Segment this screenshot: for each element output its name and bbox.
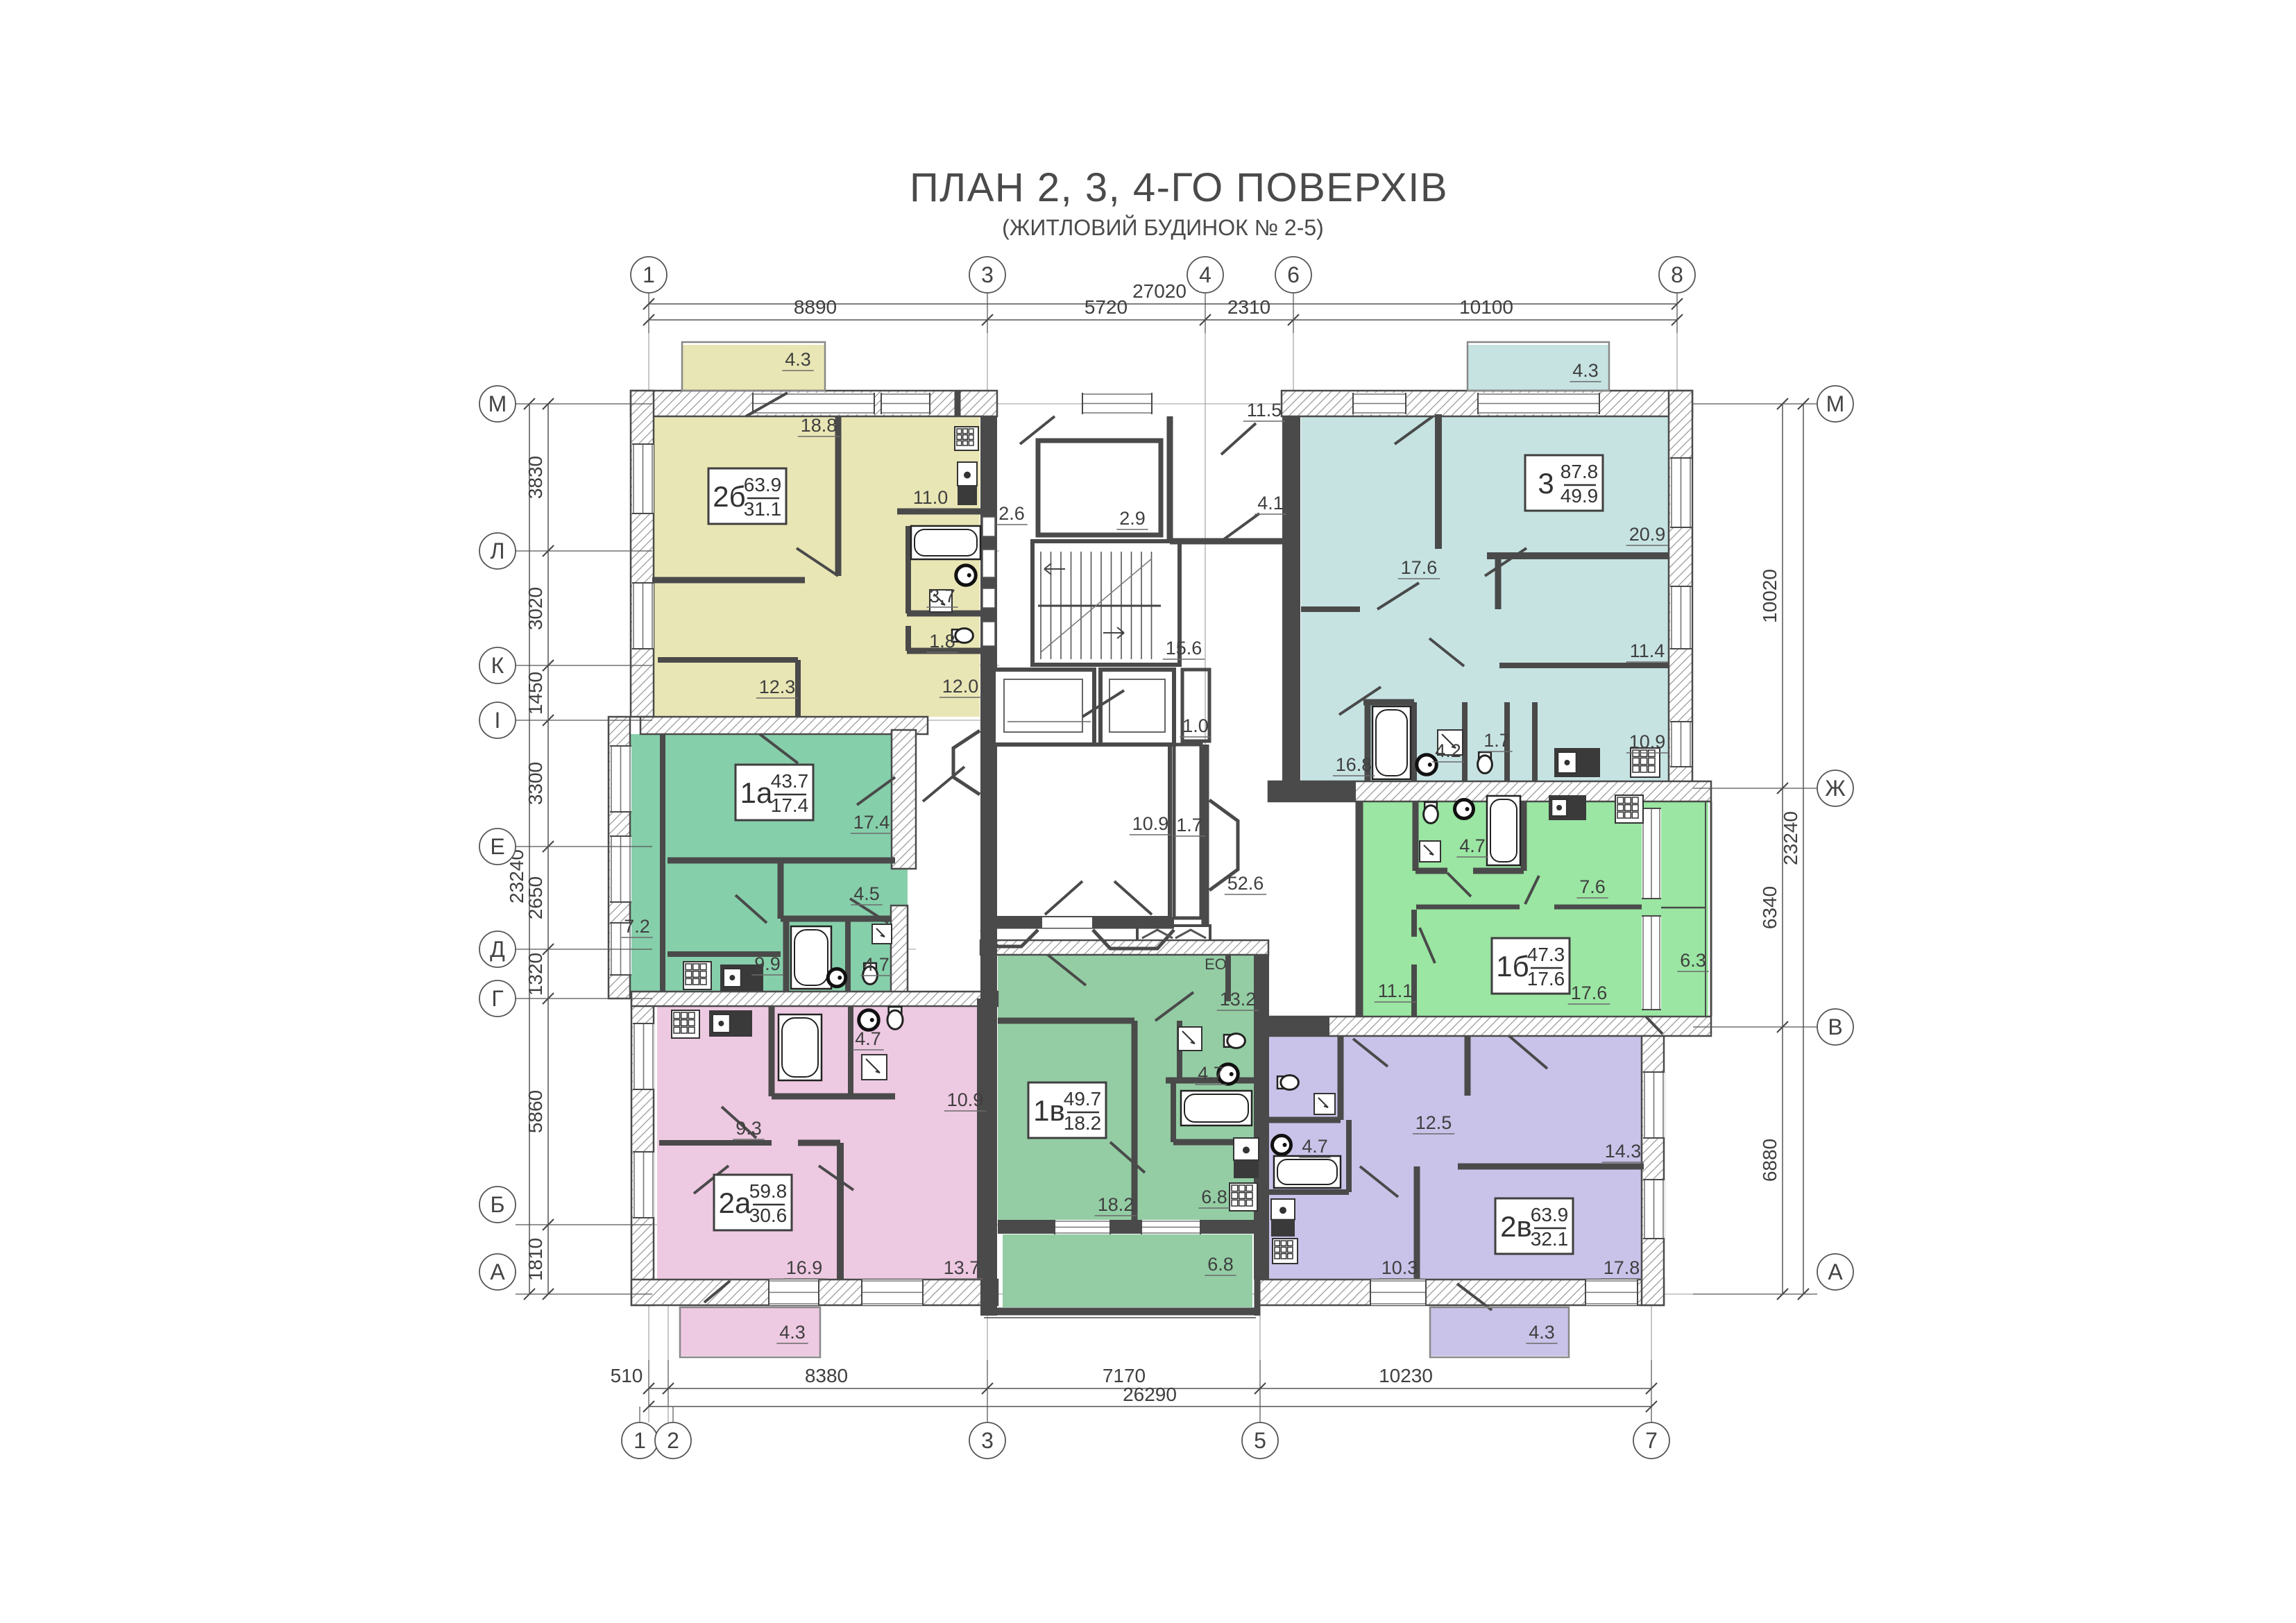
- svg-text:І: І: [495, 708, 501, 733]
- svg-text:26290: 26290: [1123, 1384, 1177, 1405]
- svg-text:К: К: [491, 653, 504, 678]
- svg-text:17.6: 17.6: [1527, 968, 1565, 989]
- svg-text:1.7: 1.7: [1483, 730, 1510, 751]
- svg-text:4.7: 4.7: [855, 1028, 881, 1049]
- svg-text:М: М: [488, 391, 507, 416]
- svg-text:3020: 3020: [525, 587, 546, 630]
- svg-text:5860: 5860: [525, 1090, 546, 1133]
- svg-text:6: 6: [1287, 262, 1300, 287]
- svg-text:4.1: 4.1: [1257, 493, 1284, 513]
- svg-text:9.9: 9.9: [754, 953, 781, 974]
- svg-text:43.7: 43.7: [771, 770, 809, 792]
- svg-text:3: 3: [1538, 467, 1554, 500]
- svg-text:10.3: 10.3: [1381, 1257, 1418, 1278]
- svg-text:7.2: 7.2: [624, 916, 650, 937]
- svg-text:63.9: 63.9: [744, 474, 782, 495]
- svg-text:23240: 23240: [1780, 811, 1801, 865]
- svg-text:М: М: [1826, 391, 1845, 416]
- svg-text:2б: 2б: [713, 480, 745, 513]
- svg-text:7: 7: [1645, 1428, 1658, 1453]
- svg-text:11.0: 11.0: [913, 487, 949, 508]
- svg-text:31.1: 31.1: [744, 498, 782, 520]
- svg-text:8890: 8890: [794, 296, 837, 318]
- svg-text:ПЛАН 2, 3, 4-ГО ПОВЕРХІВ: ПЛАН 2, 3, 4-ГО ПОВЕРХІВ: [910, 165, 1448, 210]
- svg-text:17.6: 17.6: [1571, 983, 1608, 1003]
- svg-text:2650: 2650: [525, 876, 546, 919]
- svg-text:Ж: Ж: [1825, 776, 1846, 801]
- svg-text:Е: Е: [490, 834, 504, 859]
- svg-text:10230: 10230: [1379, 1365, 1433, 1386]
- svg-text:6340: 6340: [1759, 886, 1780, 929]
- svg-text:4.3: 4.3: [779, 1322, 806, 1343]
- svg-text:17.8: 17.8: [1604, 1257, 1640, 1278]
- svg-text:49.9: 49.9: [1561, 485, 1599, 507]
- svg-text:32.1: 32.1: [1531, 1228, 1569, 1250]
- svg-text:1320: 1320: [525, 953, 546, 996]
- svg-text:(ЖИТЛОВИЙ БУДИНОК № 2-5): (ЖИТЛОВИЙ БУДИНОК № 2-5): [1002, 215, 1324, 240]
- svg-text:4.5: 4.5: [853, 883, 880, 904]
- svg-text:ЕО: ЕО: [1205, 955, 1227, 973]
- svg-text:4.3: 4.3: [1529, 1322, 1555, 1343]
- svg-text:11.5: 11.5: [1247, 400, 1282, 420]
- svg-text:8: 8: [1671, 262, 1683, 287]
- svg-text:11.4: 11.4: [1630, 640, 1665, 661]
- svg-text:12.5: 12.5: [1415, 1112, 1452, 1133]
- svg-text:7.6: 7.6: [1579, 876, 1606, 897]
- svg-text:1.8: 1.8: [929, 631, 955, 652]
- svg-text:18.2: 18.2: [1098, 1194, 1134, 1215]
- svg-text:1.0: 1.0: [1182, 715, 1209, 736]
- svg-text:17.4: 17.4: [853, 812, 890, 833]
- svg-text:1: 1: [643, 262, 655, 287]
- svg-text:4.7: 4.7: [1198, 1063, 1224, 1084]
- svg-text:3.7: 3.7: [929, 586, 955, 606]
- svg-text:13.2: 13.2: [1220, 989, 1257, 1010]
- svg-text:А: А: [1828, 1259, 1843, 1284]
- svg-text:2а: 2а: [719, 1187, 751, 1219]
- svg-text:6.3: 6.3: [1680, 950, 1706, 971]
- svg-text:1в: 1в: [1033, 1094, 1065, 1127]
- svg-text:Б: Б: [491, 1192, 505, 1217]
- svg-text:52.6: 52.6: [1227, 873, 1264, 894]
- svg-text:27020: 27020: [1132, 280, 1187, 302]
- svg-text:10020: 10020: [1759, 569, 1780, 623]
- svg-text:2.9: 2.9: [1119, 508, 1146, 529]
- svg-text:6.8: 6.8: [1207, 1254, 1234, 1275]
- svg-text:1810: 1810: [525, 1238, 546, 1281]
- svg-text:14.3: 14.3: [1605, 1141, 1642, 1162]
- svg-text:3: 3: [981, 262, 994, 287]
- svg-text:10100: 10100: [1459, 296, 1513, 318]
- svg-text:17.4: 17.4: [771, 794, 809, 816]
- svg-text:Д: Д: [490, 937, 505, 962]
- svg-text:4.7: 4.7: [1459, 835, 1486, 856]
- svg-text:1б: 1б: [1496, 950, 1529, 983]
- svg-text:87.8: 87.8: [1561, 461, 1599, 482]
- svg-text:6.8: 6.8: [1201, 1187, 1227, 1207]
- svg-text:13.7: 13.7: [944, 1257, 980, 1278]
- svg-text:47.3: 47.3: [1527, 944, 1565, 965]
- svg-text:Г: Г: [491, 986, 503, 1011]
- svg-text:8380: 8380: [805, 1365, 848, 1386]
- svg-text:1а: 1а: [740, 776, 773, 809]
- svg-text:30.6: 30.6: [749, 1205, 788, 1226]
- svg-text:4.7: 4.7: [863, 954, 890, 975]
- svg-text:10.9: 10.9: [947, 1089, 984, 1110]
- svg-text:2в: 2в: [1500, 1210, 1532, 1243]
- svg-text:4.2: 4.2: [1435, 740, 1461, 761]
- svg-text:9.3: 9.3: [735, 1118, 762, 1139]
- svg-text:1450: 1450: [525, 672, 546, 715]
- svg-text:4.3: 4.3: [1572, 360, 1599, 381]
- svg-text:5720: 5720: [1085, 296, 1128, 318]
- svg-text:Л: Л: [491, 538, 505, 563]
- svg-text:15.6: 15.6: [1166, 638, 1202, 658]
- svg-text:20.9: 20.9: [1629, 524, 1666, 545]
- svg-text:2: 2: [667, 1428, 679, 1453]
- svg-text:18.8: 18.8: [801, 415, 837, 436]
- svg-text:4.7: 4.7: [1302, 1136, 1328, 1157]
- svg-text:В: В: [1828, 1014, 1842, 1039]
- svg-text:18.2: 18.2: [1064, 1112, 1102, 1134]
- svg-text:12.3: 12.3: [759, 677, 796, 697]
- svg-text:2.6: 2.6: [998, 503, 1025, 524]
- svg-text:4.3: 4.3: [785, 349, 811, 370]
- svg-text:3: 3: [981, 1428, 994, 1453]
- svg-text:49.7: 49.7: [1064, 1088, 1102, 1110]
- svg-text:3830: 3830: [525, 456, 546, 499]
- svg-text:1.7: 1.7: [1176, 815, 1202, 835]
- svg-text:5: 5: [1254, 1428, 1266, 1453]
- svg-text:59.8: 59.8: [749, 1180, 788, 1202]
- svg-text:16.8: 16.8: [1336, 754, 1372, 775]
- svg-text:2310: 2310: [1227, 296, 1270, 318]
- svg-text:17.6: 17.6: [1401, 557, 1438, 578]
- svg-text:3300: 3300: [525, 762, 546, 805]
- svg-text:63.9: 63.9: [1531, 1204, 1569, 1225]
- svg-text:А: А: [490, 1259, 505, 1284]
- svg-text:510: 510: [611, 1365, 643, 1386]
- svg-text:10.9: 10.9: [1132, 813, 1169, 834]
- svg-text:12.0: 12.0: [942, 676, 979, 697]
- svg-text:11.1: 11.1: [1378, 980, 1413, 1001]
- svg-text:1: 1: [633, 1428, 646, 1453]
- svg-text:10.9: 10.9: [1629, 731, 1666, 752]
- svg-text:6880: 6880: [1759, 1139, 1780, 1182]
- svg-text:16.9: 16.9: [786, 1257, 823, 1278]
- svg-text:4: 4: [1199, 262, 1211, 287]
